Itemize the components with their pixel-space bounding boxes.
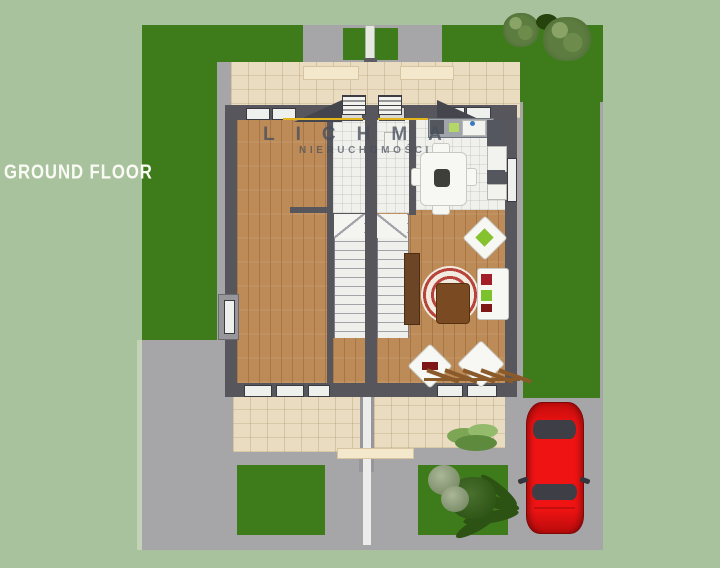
watermark-brand: LICHMA — [263, 124, 463, 146]
entry-steps-icon-left — [342, 95, 366, 115]
terrace-left — [233, 395, 360, 452]
window-side-right — [507, 158, 517, 202]
stair-winder-left — [334, 214, 364, 238]
entry-landing-right — [400, 66, 454, 80]
entry-steps-icon-right — [378, 95, 402, 115]
tree-top-1 — [503, 13, 539, 47]
window-front-left-1 — [246, 108, 270, 120]
terrace-plant-leaf-3 — [455, 435, 497, 451]
window-back-left-3 — [308, 385, 330, 397]
table-centerpiece — [434, 169, 450, 187]
fence-back — [363, 397, 371, 545]
tv-cabinet — [404, 253, 420, 325]
pillow-darkred-sofa — [481, 304, 492, 312]
left-unit-room-floor — [237, 120, 327, 383]
lawn-gate-right — [375, 28, 398, 60]
floor-plan-stage: GROUND FLOOR LICHMA NIERUCHOMOŚCI — [0, 0, 720, 568]
window-back-left-2 — [276, 385, 304, 397]
fridge-icon — [487, 146, 507, 172]
coffee-table — [436, 283, 470, 324]
lawn-back-left — [237, 465, 325, 535]
ground-floor-label: GROUND FLOOR — [4, 160, 144, 185]
curb-strip — [137, 340, 142, 550]
pillow-red-sofa — [481, 274, 492, 285]
car-windshield — [532, 484, 577, 500]
window-back-left-1 — [244, 385, 272, 397]
window-back-right-1 — [437, 385, 463, 397]
pillow-green-sofa — [481, 290, 492, 301]
watermark-subtitle: NIERUCHOMOŚCI — [299, 145, 459, 156]
tree-top-2 — [543, 17, 591, 61]
car-hood-line — [534, 507, 575, 509]
tall-cabinet-1 — [487, 120, 505, 146]
lawn-left-column — [142, 25, 217, 340]
lawn-gate-left — [343, 28, 365, 60]
window-side-left — [224, 300, 235, 334]
wall-stub-left-unit — [290, 207, 333, 213]
faucet-icon — [470, 121, 475, 126]
left-unit-hall-wood — [333, 338, 365, 383]
tall-cabinet-2 — [487, 170, 505, 184]
car-rear-window — [533, 420, 576, 439]
gutter-line-left — [283, 118, 363, 120]
tall-cabinet-3 — [487, 184, 507, 200]
stair-winder-right — [377, 214, 407, 238]
lawn-right-column — [523, 25, 600, 398]
terrace-step — [337, 448, 414, 459]
entry-landing-left — [303, 66, 359, 80]
shrub-light-2 — [441, 486, 469, 512]
